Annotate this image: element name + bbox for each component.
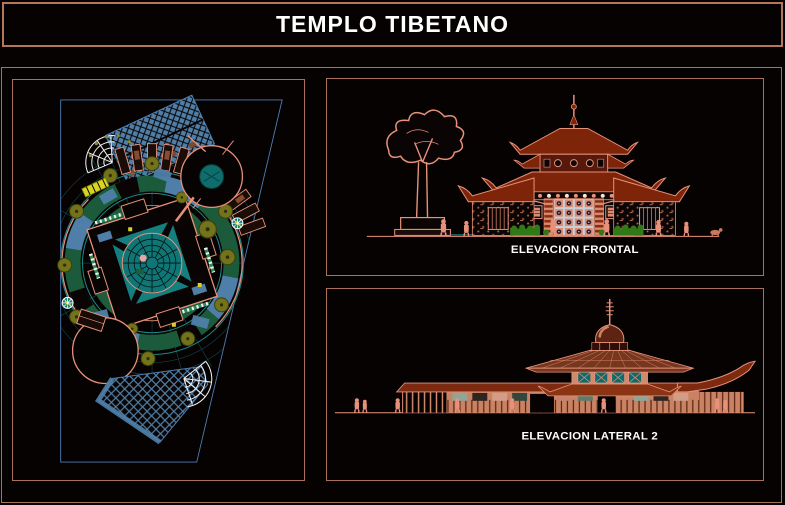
spire <box>570 95 578 131</box>
site-plan-drawing <box>13 80 304 480</box>
flower-tree <box>232 218 243 229</box>
flower-tree <box>62 297 73 308</box>
central-rotunda <box>122 233 182 293</box>
title-bar: TEMPLO TIBETANO <box>2 2 783 47</box>
sheet-title: TEMPLO TIBETANO <box>276 11 509 38</box>
front-elevation-caption: ELEVACION FRONTAL <box>511 244 639 256</box>
tower <box>526 299 693 396</box>
tree-front <box>387 110 464 235</box>
front-elevation-drawing: ELEVACION FRONTAL <box>327 79 763 275</box>
temple-front <box>458 95 689 236</box>
tower-cone-roof <box>526 350 693 372</box>
doorway <box>598 394 616 413</box>
dog-figure <box>710 228 722 236</box>
plaza-hatched <box>98 367 207 443</box>
cad-sheet: { "window": { "title": "TEMPLO TIBETANO"… <box>0 0 785 505</box>
tower-spire <box>606 299 614 325</box>
front-elevation-panel: ELEVACION FRONTAL <box>326 78 764 276</box>
pagoda-roof-top <box>510 128 637 154</box>
doorway <box>530 394 554 413</box>
upper-drum <box>514 154 633 172</box>
side-elevation-caption: ELEVACION LATERAL 2 <box>521 430 658 442</box>
site-plan-panel <box>12 79 305 481</box>
side-elevation-panel: ELEVACION LATERAL 2 <box>326 288 764 481</box>
lattice-door <box>554 199 594 236</box>
side-elevation-drawing: ELEVACION LATERAL 2 <box>327 289 763 480</box>
